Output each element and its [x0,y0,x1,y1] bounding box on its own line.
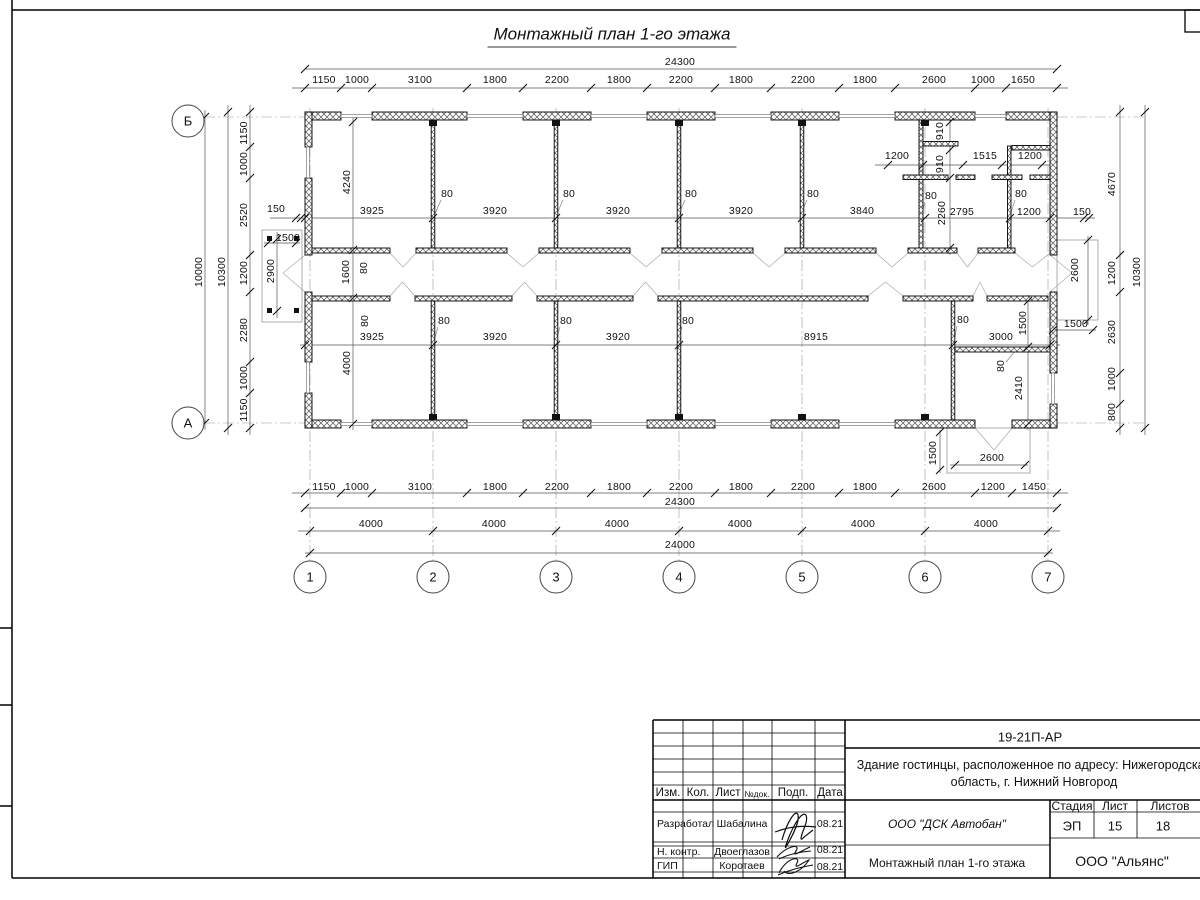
dim-label: 3925 [360,331,384,343]
dim-label: 80 [1015,188,1027,200]
dim-label: 4000 [341,351,353,375]
dim-label: 3925 [360,205,384,217]
dim-label: 2410 [1013,376,1025,400]
object-description: Здание гостинцы, расположенное по адресу… [845,748,1200,800]
company-name: ООО "Альянс" [1075,853,1169,869]
dim-label: 1450 [1022,481,1046,493]
sheet-number: 15 [1108,819,1122,834]
sheets-total: 18 [1156,819,1170,834]
dim-label: 1000 [1106,367,1118,391]
stage-label: Стадия [1052,799,1093,813]
dim-label: 2795 [950,206,974,218]
dim-label: 3920 [483,331,507,343]
col-data: Дата [817,787,842,799]
signatures [775,813,816,875]
dim-label: 80 [563,188,575,200]
dim-label: 80 [685,188,697,200]
row-name-dvoeglazov: Двоеглазов [714,846,770,858]
dim-label: 1200 [1106,261,1118,285]
dim-label: 2630 [1106,320,1118,344]
col-ndok: №док. [745,789,770,799]
dim-label: 1800 [483,74,507,86]
dim-label: 800 [1106,403,1118,421]
dim-label: 1500 [927,441,939,465]
row-date-2: 08.21 [817,844,843,856]
drawing-name: Монтажный план 1-го этажа [869,856,1025,870]
dim-label: 10000 [193,257,205,287]
dim-label: 1600 [340,260,352,284]
col-izm: Изм. [656,787,681,799]
dim-label: 80 [441,188,453,200]
dim-label: 4000 [605,518,629,530]
grid-bubble-6: 6 [909,561,942,594]
dim-label: 3840 [850,205,874,217]
dim-label: 1500 [1064,318,1088,330]
dim-label: 24300 [665,496,695,508]
dim-label: 3000 [989,331,1013,343]
dim-label: 8915 [804,331,828,343]
dim-label: 150 [1073,206,1091,218]
dim-label: 2600 [980,452,1004,464]
drawing-sheet: 2430011501000310018002200180022001800220… [0,0,1200,900]
dim-label: 1800 [853,74,877,86]
dim-label: 1650 [1011,74,1035,86]
dim-label: 1800 [607,74,631,86]
dim-label: 2260 [936,201,948,225]
dim-label: 1500 [1017,311,1029,335]
row-role-gip: ГИП [657,860,678,872]
dim-label: 910 [934,122,946,140]
doc-code: 19-21П-АР [998,730,1062,745]
dim-label: 1500 [276,232,300,244]
dim-label: 1000 [345,74,369,86]
dim-label: 3100 [408,74,432,86]
grid-bubble-3: 3 [540,561,573,594]
dim-label: 4000 [482,518,506,530]
dim-label: 2200 [791,74,815,86]
row-date-1: 08.21 [817,818,843,830]
dim-label: 1000 [345,481,369,493]
dim-label: 1800 [729,74,753,86]
dim-label: 3920 [606,331,630,343]
dim-label: 1800 [607,481,631,493]
dim-label: 1800 [853,481,877,493]
dim-label: 3920 [483,205,507,217]
dim-label: 24300 [665,56,695,68]
object-description-line2: область, г. Нижний Новгород [845,774,1200,791]
row-role-nkontr: Н. контр. [657,846,700,858]
dim-label: 3920 [729,205,753,217]
dim-label: 4670 [1106,172,1118,196]
dim-label: 1150 [312,74,335,86]
dim-label: 4000 [728,518,752,530]
dim-label: 80 [807,188,819,200]
dim-label: 1000 [238,152,250,176]
col-kol: Кол. [687,787,710,799]
org-name: ООО "ДСК Автобан" [888,817,1006,831]
dim-label: 2520 [238,203,250,227]
dim-label: 1800 [729,481,753,493]
row-name-shabalina: Шабалина [717,818,768,830]
grid-bubble-4: 4 [663,561,696,594]
dim-label: 80 [957,314,969,326]
col-podp: Подп. [778,787,809,799]
dim-label: 3920 [606,205,630,217]
row-name-korotaev: Коротаев [719,860,764,872]
grid-bubble-1: 1 [294,561,327,594]
grid-bubble-2: 2 [417,561,450,594]
dim-label: 2600 [922,74,946,86]
dim-label: 1200 [885,150,909,162]
dim-label: 80 [359,315,371,327]
dim-label: 2280 [238,318,250,342]
dim-label: 910 [934,155,946,173]
dim-label: 1000 [238,366,250,390]
dim-label: 2200 [669,481,693,493]
dim-label: 10300 [216,257,228,287]
col-list: Лист [716,787,741,799]
dim-label: 80 [995,360,1007,372]
dim-label: 2200 [545,481,569,493]
dim-label: 2600 [922,481,946,493]
dim-label: 10300 [1131,257,1143,287]
dim-label: 2200 [545,74,569,86]
dim-label: 80 [438,315,450,327]
dim-label: 1000 [971,74,995,86]
object-description-line1: Здание гостинцы, расположенное по адресу… [845,757,1200,774]
dim-label: 150 [267,203,285,215]
dim-label: 1150 [238,398,250,421]
dim-label: 4000 [974,518,998,530]
row-date-3: 08.21 [817,861,843,873]
dim-label: 4000 [851,518,875,530]
dim-label: 3100 [408,481,432,493]
dim-label: 4240 [341,170,353,194]
dim-label: 1200 [1017,206,1041,218]
dim-label: 1200 [1018,150,1042,162]
dim-label: 80 [560,315,572,327]
row-role-razrabotal: Разработал [657,818,714,830]
dim-label: 1150 [312,481,335,493]
dim-label: 1515 [973,150,997,162]
dim-label: 80 [682,315,694,327]
dim-label: 1150 [238,121,250,144]
sheet-label: Лист [1102,799,1128,813]
grid-bubble-А: А [172,407,205,440]
dim-label: 24000 [665,539,695,551]
dim-label: 4000 [359,518,383,530]
dim-label: 2900 [265,259,277,283]
dim-label: 2200 [791,481,815,493]
dim-label: 1200 [238,261,250,285]
dim-label: 2600 [1069,258,1081,282]
dim-label: 1200 [981,481,1005,493]
dim-label: 2200 [669,74,693,86]
dim-label: 1800 [483,481,507,493]
sheets-label: Листов [1151,799,1190,813]
stage-value: ЭП [1063,819,1082,834]
page-title: Монтажный план 1-го этажа [487,25,736,48]
dim-label: 80 [358,262,370,274]
grid-bubble-5: 5 [786,561,819,594]
grid-bubble-Б: Б [172,105,205,138]
grid-bubble-7: 7 [1032,561,1065,594]
